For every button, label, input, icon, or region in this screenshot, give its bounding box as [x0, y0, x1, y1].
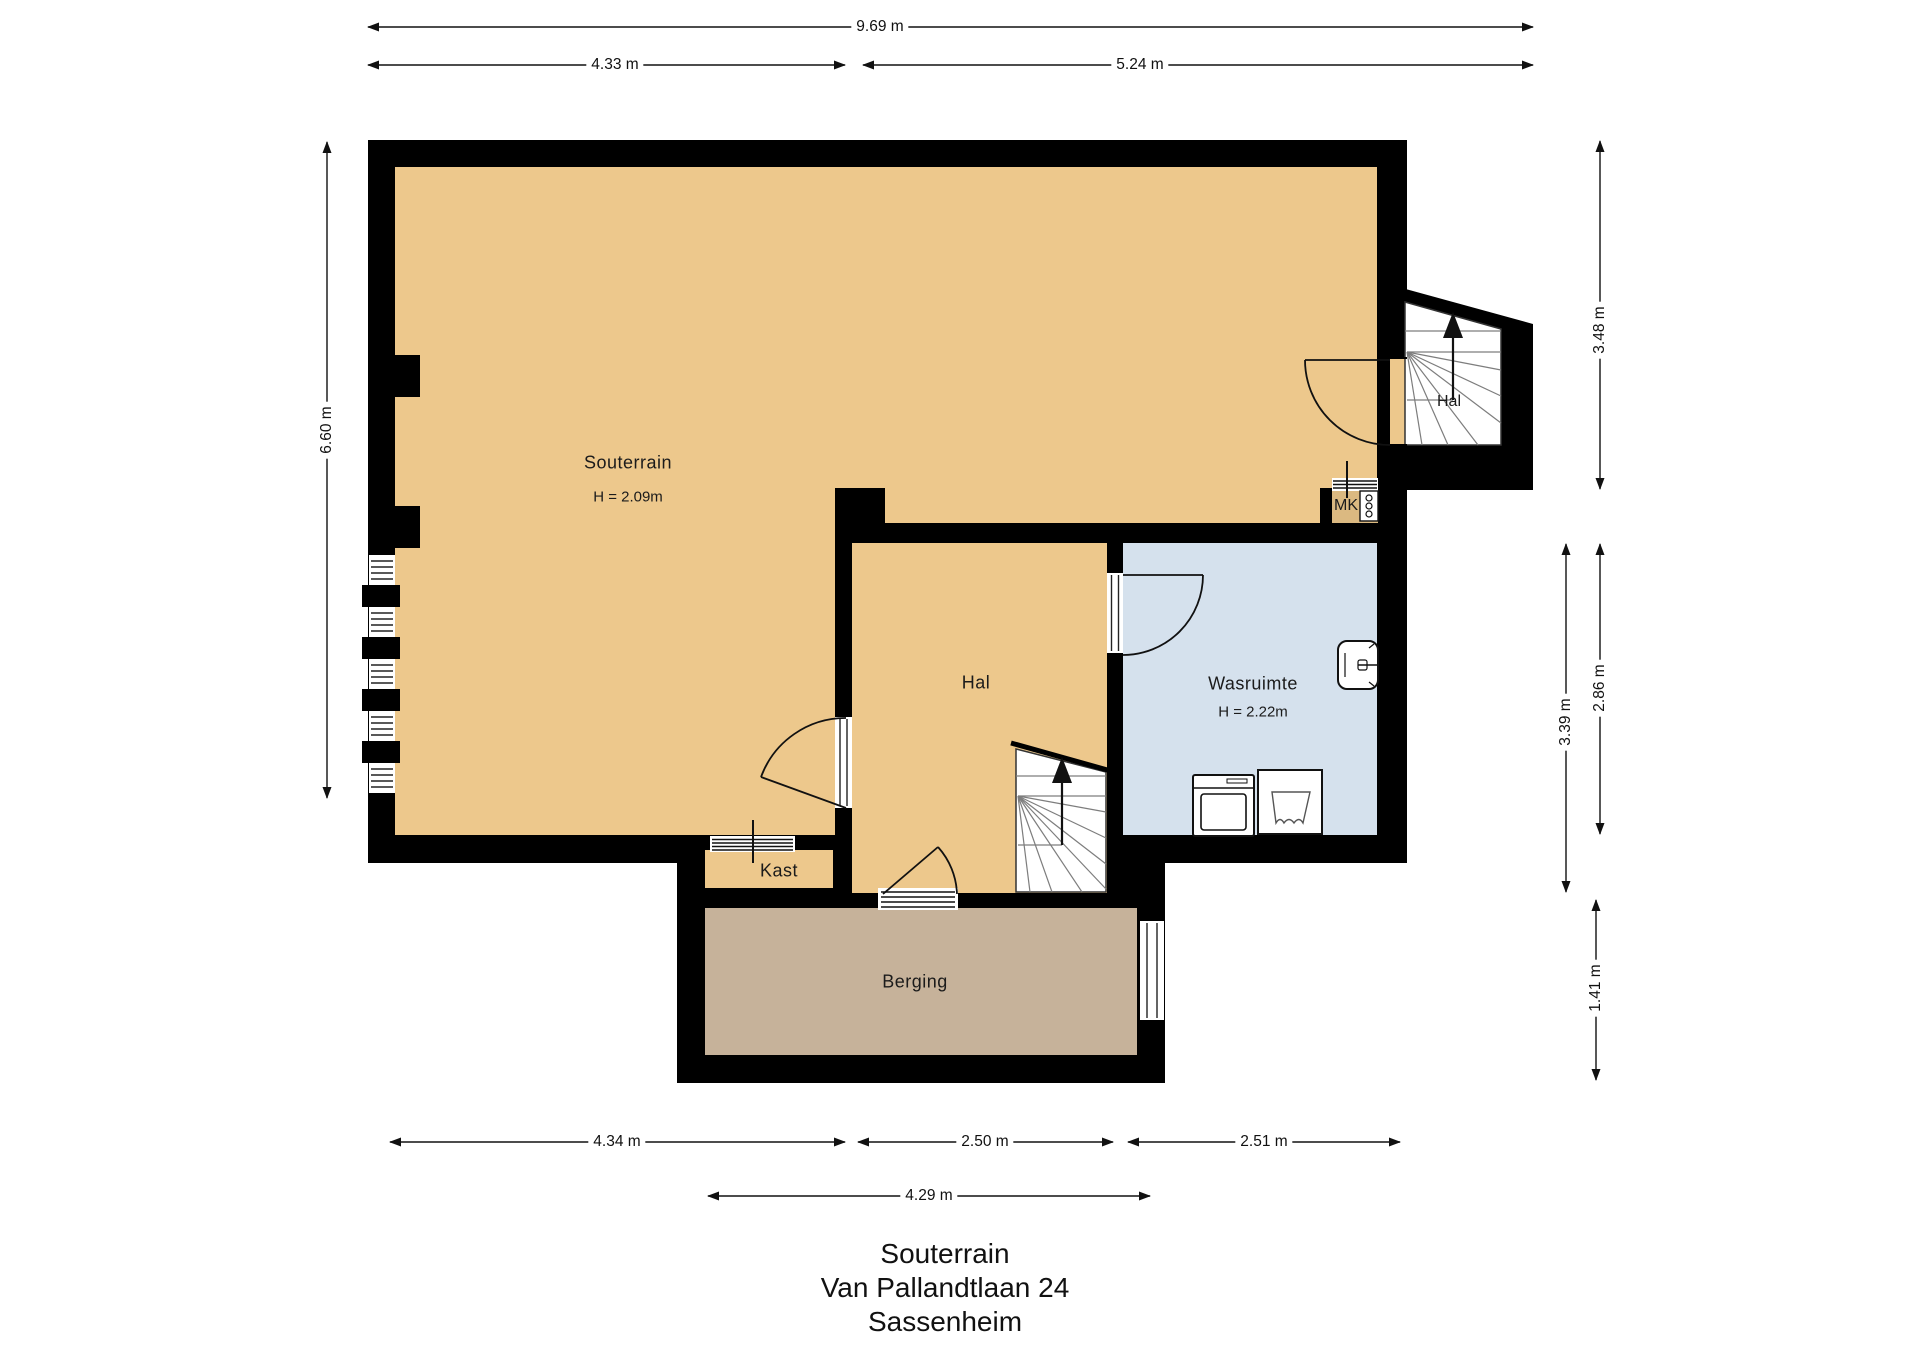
room-floors — [395, 167, 1407, 1055]
room-wasruimte-height: H = 2.22m — [1218, 704, 1288, 721]
dimension-top-left: 4.33 m — [586, 56, 643, 74]
floorplan-canvas: Souterrain H = 2.09m Hal Hal Wasruimte H… — [0, 0, 1920, 1358]
floorplan-drawing — [0, 0, 1920, 1358]
sink-icon — [1338, 641, 1378, 689]
room-hal-upper-label: Hal — [1437, 393, 1461, 411]
room-wasruimte-label: Wasruimte — [1208, 674, 1298, 695]
dimension-top-total: 9.69 m — [851, 18, 908, 36]
dimension-right-lower: 1.41 m — [1587, 959, 1605, 1016]
room-mk-label: MK — [1334, 497, 1358, 515]
room-berging-label: Berging — [882, 972, 948, 993]
room-souterrain-height: H = 2.09m — [593, 489, 663, 506]
plan-title-floor: Souterrain — [880, 1238, 1009, 1270]
dimension-bottom-right: 2.51 m — [1235, 1133, 1292, 1151]
room-souterrain-label: Souterrain — [584, 453, 672, 474]
dimension-left-height: 6.60 m — [318, 401, 336, 458]
dimension-top-right: 5.24 m — [1111, 56, 1168, 74]
threshold-berging — [878, 888, 958, 910]
dimension-bottom-middle: 2.50 m — [956, 1133, 1013, 1151]
washing-machine-icon — [1193, 775, 1254, 836]
staircase-main-icon — [1011, 743, 1111, 892]
room-hal-label: Hal — [962, 673, 991, 694]
dimension-bottom-berging: 4.29 m — [900, 1187, 957, 1205]
laundry-basket-icon — [1258, 770, 1322, 834]
room-kast-label: Kast — [760, 861, 798, 882]
dimension-right-middle: 2.86 m — [1591, 659, 1609, 716]
plan-title-city: Sassenheim — [868, 1306, 1022, 1338]
dimension-right-upper: 3.48 m — [1591, 301, 1609, 358]
plan-title-address: Van Pallandtlaan 24 — [821, 1272, 1070, 1304]
room-souterrain-floor — [885, 488, 1320, 523]
dimension-bottom-left: 4.34 m — [588, 1133, 645, 1151]
window-icon — [1140, 921, 1164, 1020]
meter-cabinet-icon — [1360, 491, 1378, 521]
room-souterrain-floor — [835, 167, 1377, 488]
dimension-right-outer: 3.39 m — [1557, 693, 1575, 750]
